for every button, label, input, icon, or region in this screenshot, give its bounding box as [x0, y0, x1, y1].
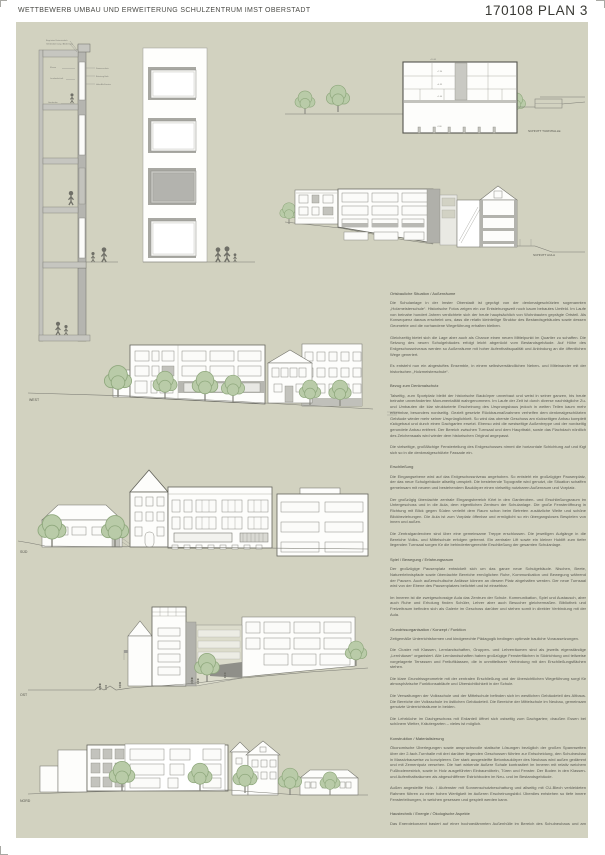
section-heading: Erschließung	[390, 464, 586, 470]
text-section: Spiel / Bewegung / Erfahrungsraum Der gr…	[390, 557, 586, 618]
annotation-room-2: Lernlandschaft	[50, 77, 64, 80]
section-body: Die Eingangsebene wird auf das Erdgescho…	[390, 474, 586, 548]
text-section: Haustechnik / Energie / Ökologische Aspe…	[390, 811, 586, 825]
section-label-turnhalle: SCHNITT TURNHALLE	[528, 129, 561, 133]
annotation-room-1: Klasse	[50, 67, 57, 69]
section-body: Talseitig, zum Sportplatz bleibt der his…	[390, 393, 586, 456]
level-mark: +1.40	[437, 96, 443, 98]
elevation-label-nord: NORD	[20, 799, 31, 803]
section-heading: Bezug zum Denkmalschutz	[390, 383, 586, 389]
annotation-room-3: Garderobe	[48, 102, 58, 104]
level-mark: +7.30	[437, 71, 443, 73]
elevation-label-sued: SÜD	[20, 550, 28, 554]
text-section: Bezug zum Denkmalschutz Talseitig, zum S…	[390, 383, 586, 455]
text-section: Erschließung Die Eingangsebene wird auf …	[390, 464, 586, 547]
section-body: Die Schulanlage in der Imster Oberstadt …	[390, 300, 586, 374]
level-mark: +10.45	[430, 59, 437, 61]
section-heading: Spiel / Bewegung / Erfahrungsraum	[390, 557, 586, 563]
annotation-roof-1: Begrüntes Extensivdach	[46, 39, 68, 42]
plan-sheet: WETTBEWERB UMBAU UND ERWEITERUNG SCHULZE…	[0, 0, 605, 855]
elevation-label-west: WEST	[29, 398, 40, 402]
text-section: Konstruktion / Materialisierung Ökonomis…	[390, 736, 586, 802]
elevation-label-ost: OST	[20, 693, 28, 697]
annotation-roof-2: Gefälledämmung / Abdichtung	[46, 43, 73, 46]
section-body: Ökonomische Überlegungen sowie anspruchs…	[390, 745, 586, 802]
text-section: Grundrissorganisation / Konzept / Funkti…	[390, 627, 586, 728]
section-label-aula: SCHNITT AULA	[533, 253, 556, 257]
section-heading: Ortsbauliche Situation / Außenräume	[390, 291, 586, 297]
level-mark: +4.35	[437, 84, 443, 86]
section-body: Der großzügige Pausenplatz entwickelt si…	[390, 566, 586, 617]
annotation-callout-3: Holz-Alu-Fenster	[96, 83, 111, 86]
description-column: Ortsbauliche Situation / Außenräume Die …	[390, 291, 586, 825]
section-heading: Grundrissorganisation / Konzept / Funkti…	[390, 627, 586, 633]
annotation-callout-2: Brüstung Holz	[96, 75, 109, 78]
annotation-callout-1: Sonnenschutz	[96, 67, 109, 70]
section-heading: Haustechnik / Energie / Ökologische Aspe…	[390, 811, 586, 817]
section-body: Das Energiekonzept basiert auf einer hoc…	[390, 821, 586, 825]
section-heading: Konstruktion / Materialisierung	[390, 736, 586, 742]
section-body: Zeitgemäße Unterrichtsformen und kindger…	[390, 636, 586, 727]
text-section: Ortsbauliche Situation / Außenräume Die …	[390, 291, 586, 374]
